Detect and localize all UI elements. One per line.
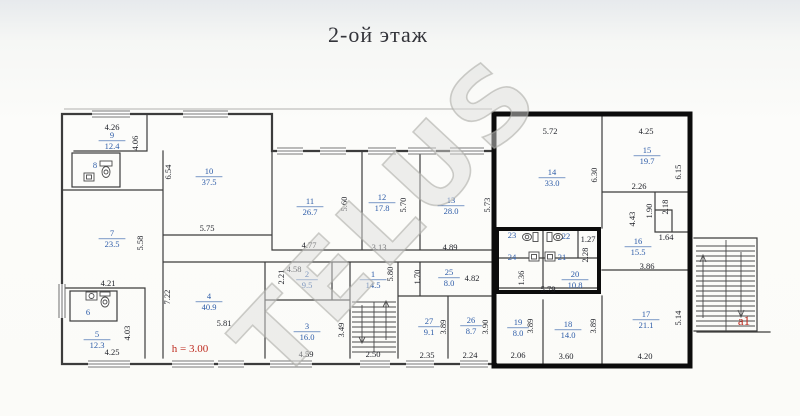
dimension-label: 3.60 (559, 351, 574, 361)
dimension-label: 6.30 (589, 168, 599, 183)
window (172, 361, 214, 368)
room-label-23: 23 (508, 230, 517, 240)
svg-text:23.5: 23.5 (105, 239, 120, 249)
floor-plan-page: 2-ой этаж (0, 0, 800, 416)
svg-text:18: 18 (564, 319, 573, 329)
svg-text:17: 17 (642, 309, 651, 319)
stair-up-arrow (700, 255, 706, 318)
sink-icon (84, 173, 94, 181)
dimension-label: 3.86 (640, 261, 655, 271)
dimension-label: 2.35 (420, 350, 435, 360)
stair-down-arrow (738, 252, 744, 317)
dimension-label: 2.28 (580, 248, 590, 263)
dimension-label: 7.22 (162, 290, 172, 305)
dimension-label: 5.79 (541, 284, 556, 294)
svg-text:26: 26 (467, 315, 476, 325)
dimension-label: 5.14 (673, 310, 683, 326)
svg-text:16: 16 (634, 236, 643, 246)
svg-text:6: 6 (86, 307, 90, 317)
dimension-label: 3.89 (588, 319, 598, 334)
floor-plan-canvas: 2-ой этаж (0, 0, 800, 416)
dimension-label: 2.24 (463, 350, 479, 360)
svg-text:21.1: 21.1 (639, 320, 654, 330)
svg-text:33.0: 33.0 (545, 178, 560, 188)
svg-text:8.7: 8.7 (466, 326, 477, 336)
window (88, 361, 130, 368)
svg-text:8.0: 8.0 (444, 278, 455, 288)
room-label-9: 912.4 (99, 130, 126, 151)
telus-watermark: TELUS (210, 34, 564, 402)
room-label-8: 8 (93, 160, 97, 170)
window (360, 361, 390, 368)
room-8-walls (72, 153, 120, 187)
toilet-icon (100, 161, 112, 178)
dimension-label: 4.20 (638, 351, 653, 361)
svg-text:10: 10 (205, 166, 214, 176)
svg-text:9.1: 9.1 (424, 327, 435, 337)
toilet-icon (547, 233, 563, 242)
page-title: 2-ой этаж (328, 22, 428, 47)
room-label-25: 258.0 (438, 267, 460, 288)
dimension-label: 4.43 (627, 212, 637, 227)
room-label-21: 21 (558, 252, 567, 262)
dimension-label: 4.21 (101, 278, 116, 288)
room-label-4: 440.9 (196, 291, 223, 312)
toilet-icon (523, 233, 539, 242)
room-label-6: 6 (86, 307, 90, 317)
room-label-24: 24 (508, 252, 517, 262)
window (460, 361, 488, 368)
dimension-label: 2.18 (660, 200, 670, 215)
dimension-label: 2.26 (632, 181, 647, 191)
dimension-label: 2.06 (511, 350, 526, 360)
window (277, 148, 303, 155)
room-label-14: 1433.0 (539, 167, 566, 188)
svg-text:10.8: 10.8 (568, 280, 583, 290)
dimension-label: 4.25 (105, 347, 120, 357)
window (92, 111, 130, 118)
window (183, 111, 228, 118)
window (59, 284, 66, 318)
svg-text:7: 7 (110, 228, 114, 238)
window (218, 361, 244, 368)
dimension-label: 1.27 (581, 234, 596, 244)
svg-text:40.9: 40.9 (202, 302, 217, 312)
room-label-7: 723.5 (99, 228, 126, 249)
room-label-20: 2010.8 (562, 269, 589, 290)
dimension-label: 4.25 (639, 126, 654, 136)
window (320, 148, 346, 155)
dimension-label: 3.89 (525, 319, 535, 334)
ceiling-height-note: h = 3.00 (172, 343, 209, 355)
svg-text:37.5: 37.5 (202, 177, 217, 187)
dimension-label: 4.82 (465, 273, 480, 283)
dimension-label: 6.54 (163, 164, 173, 180)
svg-text:12.4: 12.4 (105, 141, 121, 151)
svg-text:27: 27 (425, 316, 434, 326)
annex-stair-label: a1 (738, 313, 750, 328)
room-label-16: 1615.5 (625, 236, 652, 257)
room-label-26: 268.7 (460, 315, 482, 336)
dimension-label: 4.06 (130, 136, 140, 151)
dimension-label: 3.89 (438, 320, 448, 335)
svg-text:8: 8 (93, 160, 97, 170)
room-label-18: 1814.0 (555, 319, 582, 340)
toilet-icon (100, 292, 110, 307)
svg-text:25: 25 (445, 267, 454, 277)
svg-text:14.0: 14.0 (561, 330, 576, 340)
svg-text:19.7: 19.7 (640, 156, 655, 166)
svg-text:5: 5 (95, 329, 99, 339)
sink-icon (86, 292, 97, 300)
sink-icon (529, 252, 539, 261)
dimension-label: 3.90 (480, 320, 490, 335)
svg-text:14: 14 (548, 167, 557, 177)
window (406, 361, 434, 368)
dimension-label: 1.64 (659, 232, 675, 242)
dimension-label: 1.90 (644, 204, 654, 219)
room-label-27: 279.1 (418, 316, 440, 337)
svg-text:20: 20 (571, 269, 580, 279)
room-label-22: 22 (562, 231, 571, 241)
svg-text:15.5: 15.5 (631, 247, 646, 257)
svg-text:22: 22 (562, 231, 571, 241)
svg-text:21: 21 (558, 252, 567, 262)
svg-text:15: 15 (643, 145, 652, 155)
svg-text:11: 11 (306, 196, 314, 206)
svg-text:19: 19 (514, 317, 523, 327)
dimension-label: 6.15 (673, 165, 683, 180)
dimension-label: 1.36 (516, 271, 526, 286)
dimension-label: 2.50 (366, 349, 381, 359)
dimension-label: 5.75 (200, 223, 215, 233)
dimension-label: 4.03 (122, 326, 132, 341)
svg-text:4: 4 (207, 291, 212, 301)
sink-icon (545, 252, 555, 261)
dimension-label: 5.58 (135, 236, 145, 251)
room-label-15: 1519.7 (634, 145, 661, 166)
svg-text:12.3: 12.3 (90, 340, 105, 350)
svg-text:8.0: 8.0 (513, 328, 524, 338)
dimension-label: 4.26 (105, 122, 120, 132)
room-label-17: 1721.1 (633, 309, 660, 330)
svg-text:24: 24 (508, 252, 517, 262)
svg-text:23: 23 (508, 230, 517, 240)
room-label-10: 1037.5 (196, 166, 223, 187)
